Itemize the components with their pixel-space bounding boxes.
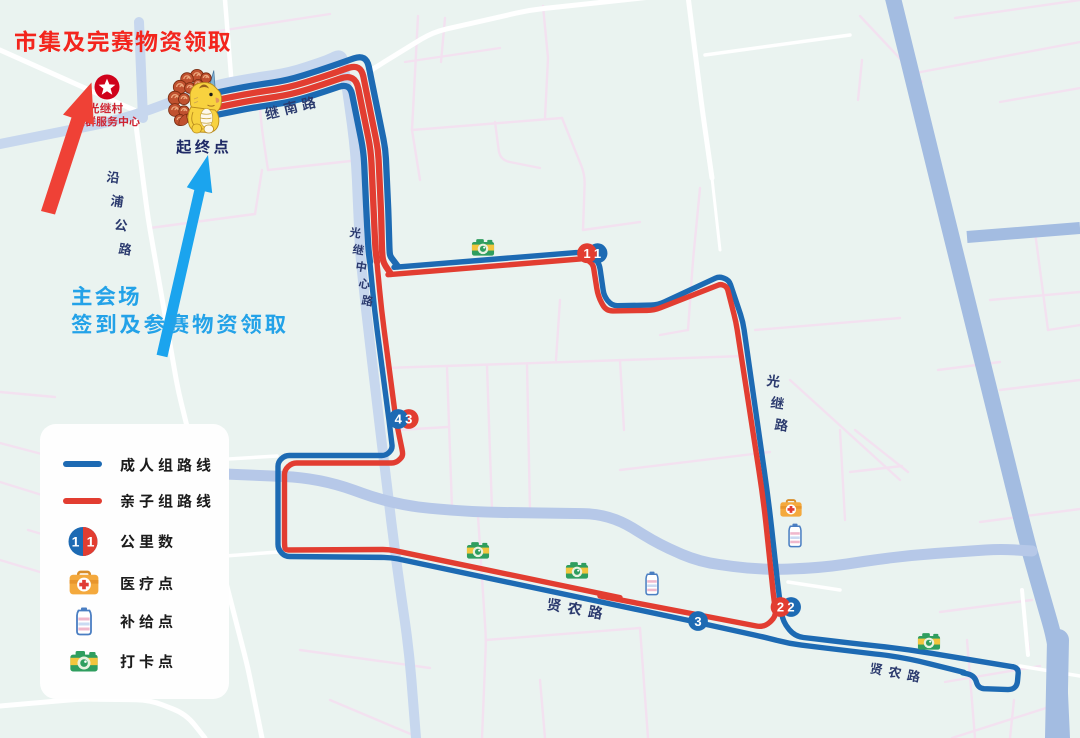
svg-text:1: 1 bbox=[72, 534, 80, 550]
svg-text:3: 3 bbox=[694, 614, 701, 629]
svg-text:1: 1 bbox=[594, 246, 601, 261]
svg-text:4: 4 bbox=[395, 412, 403, 427]
svg-text:3: 3 bbox=[405, 412, 412, 427]
svg-text:2: 2 bbox=[777, 600, 784, 615]
svg-text:1: 1 bbox=[583, 246, 590, 261]
svg-text:2: 2 bbox=[787, 600, 794, 615]
svg-text:1: 1 bbox=[87, 534, 95, 550]
